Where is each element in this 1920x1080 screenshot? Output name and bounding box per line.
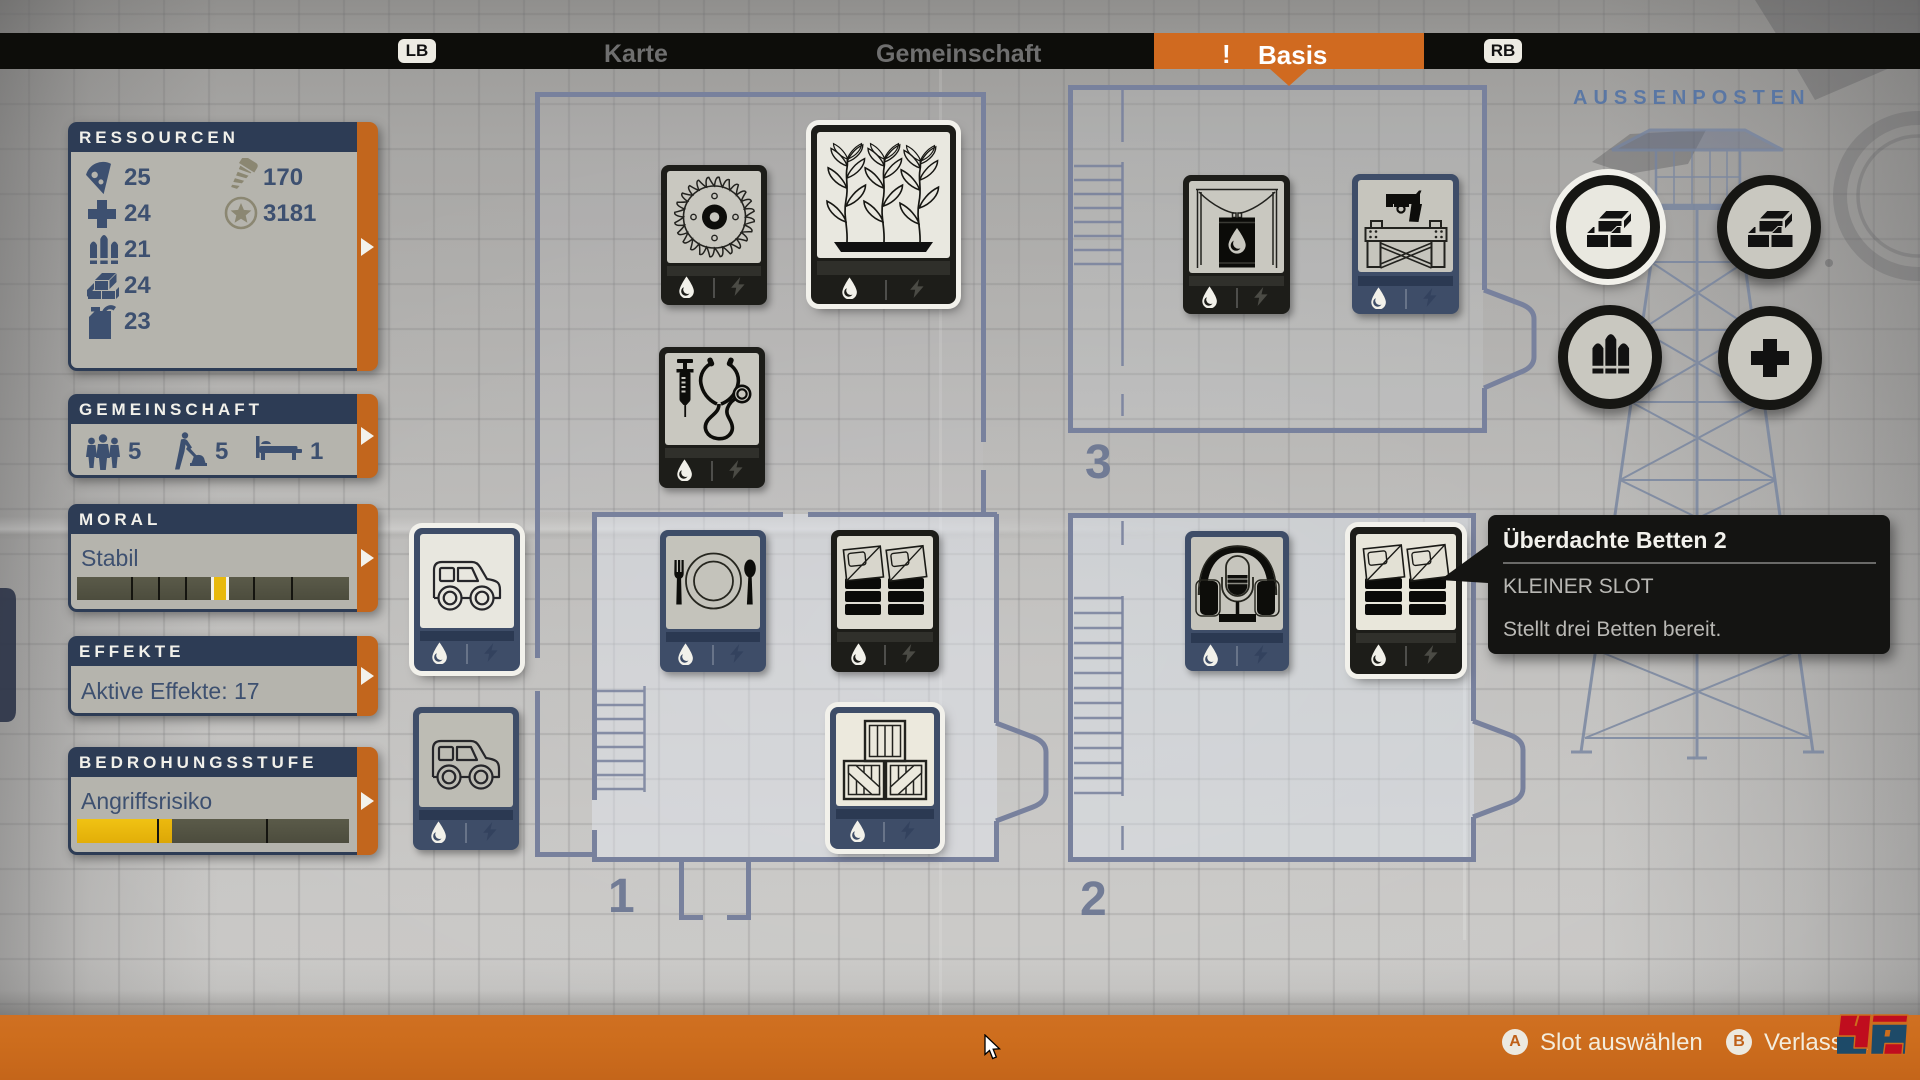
svg-text:1: 1	[608, 870, 635, 923]
svg-text:3: 3	[1085, 436, 1112, 489]
svg-text:2: 2	[1080, 873, 1107, 926]
